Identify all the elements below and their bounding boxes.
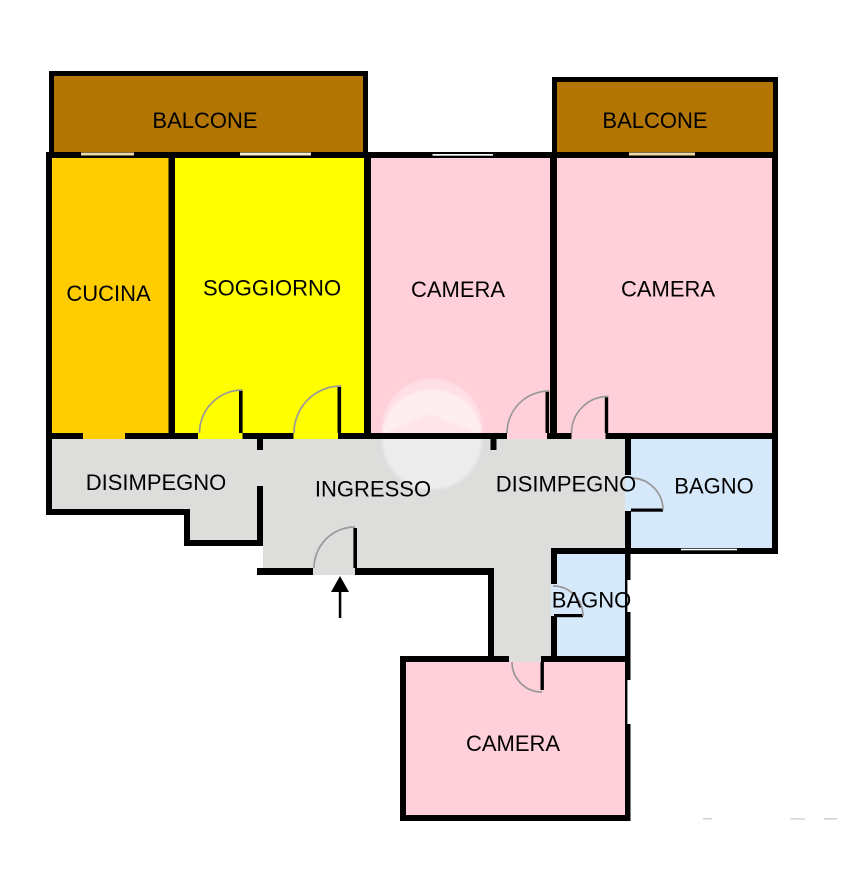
svg-text:BAGNO: BAGNO <box>674 474 753 499</box>
svg-text:CAMERA: CAMERA <box>466 731 560 756</box>
svg-text:BALCONE: BALCONE <box>152 108 257 133</box>
svg-text:CAMERA: CAMERA <box>621 277 715 302</box>
svg-text:CUCINA: CUCINA <box>66 281 151 306</box>
svg-text:BALCONE: BALCONE <box>602 108 707 133</box>
svg-text:DISIMPEGNO: DISIMPEGNO <box>86 470 227 495</box>
svg-text:INGRESSO: INGRESSO <box>315 477 431 502</box>
svg-text:CAMERA: CAMERA <box>411 277 505 302</box>
svg-text:BAGNO: BAGNO <box>552 588 631 613</box>
svg-text:DISIMPEGNO: DISIMPEGNO <box>496 472 637 497</box>
svg-text:SOGGIORNO: SOGGIORNO <box>203 276 341 301</box>
